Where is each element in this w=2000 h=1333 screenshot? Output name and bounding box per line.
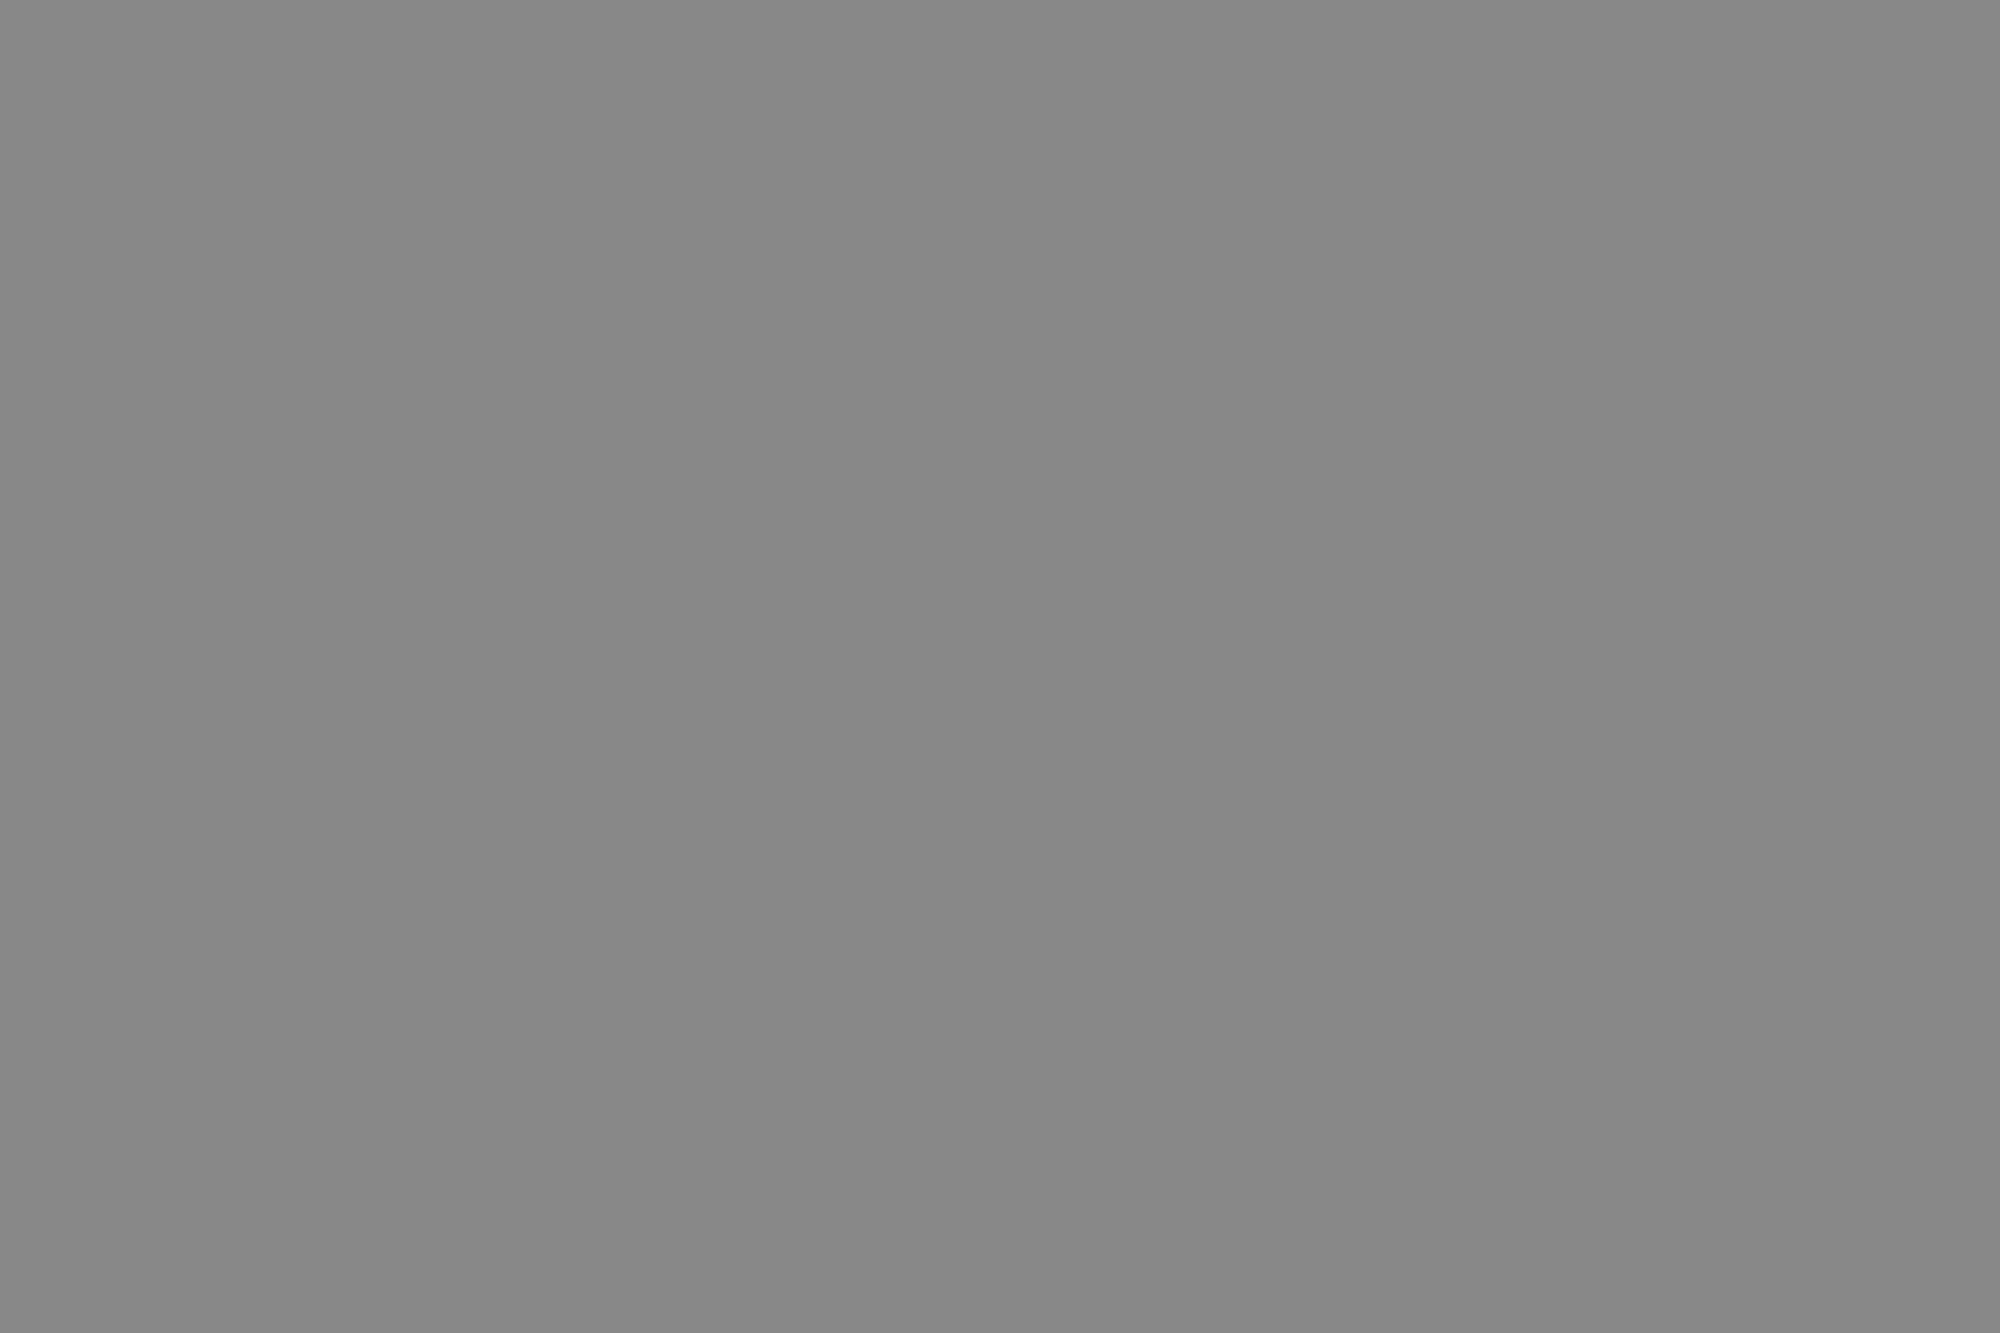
aerial-site-rendering <box>0 0 2000 1333</box>
aerial-site-rendering-stage <box>0 0 2000 1333</box>
